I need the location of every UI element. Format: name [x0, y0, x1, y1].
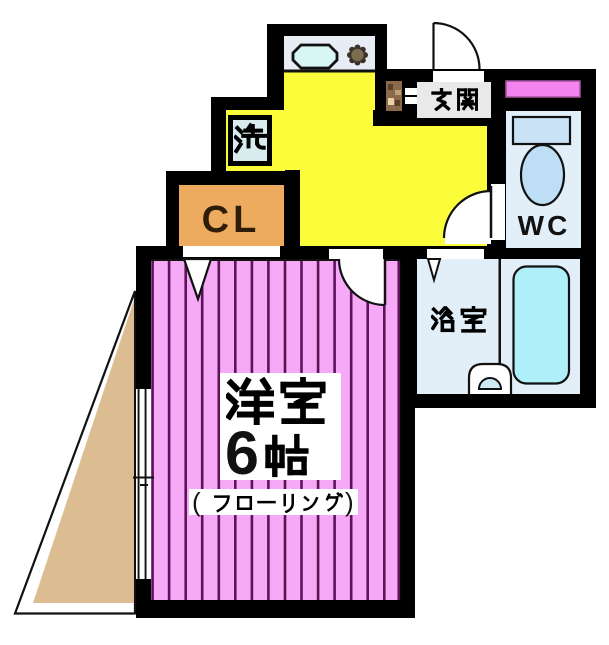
svg-text:(: ( [192, 487, 201, 517]
svg-text:WC: WC [518, 210, 571, 241]
svg-text:6: 6 [225, 419, 259, 487]
svg-text:CL: CL [202, 199, 261, 241]
svg-text:): ) [345, 487, 354, 517]
